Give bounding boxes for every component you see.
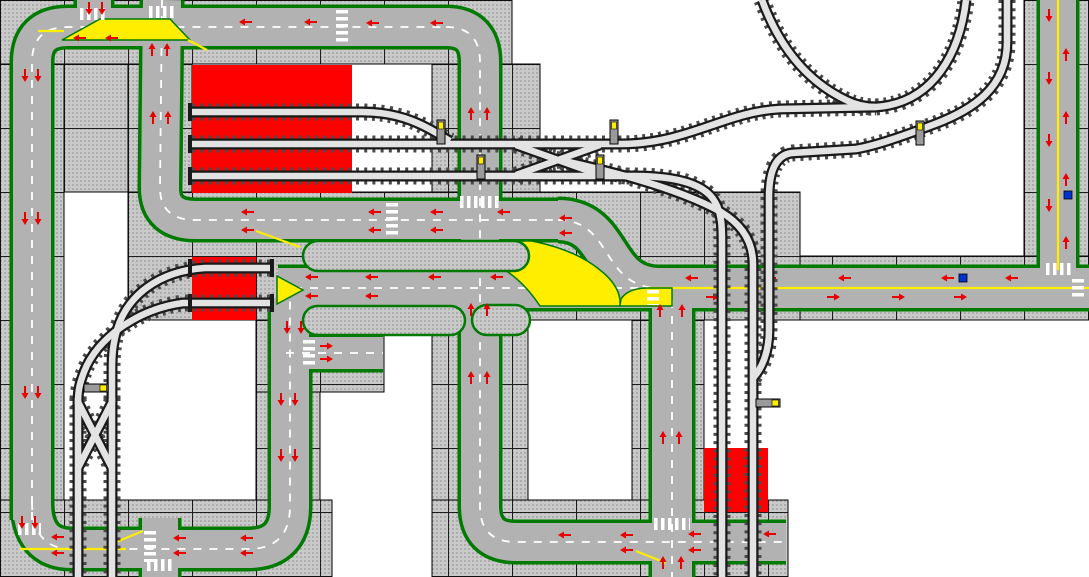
rail-buffer-stop — [270, 294, 274, 312]
track-layout-canvas[interactable] — [0, 0, 1089, 577]
signal-icon[interactable] — [84, 384, 108, 392]
blue-marker[interactable] — [1064, 191, 1072, 199]
rail-buffer-stop — [270, 259, 274, 277]
median-island[interactable] — [303, 241, 529, 271]
rail-ties — [762, 0, 876, 107]
blue-marker[interactable] — [959, 274, 967, 282]
rail-buffer-stop — [188, 167, 192, 185]
median-island[interactable] — [472, 305, 530, 335]
signal-icon[interactable] — [610, 120, 618, 144]
median-island[interactable] — [303, 306, 465, 335]
signal-icon[interactable] — [916, 121, 924, 145]
signal-icon[interactable] — [596, 155, 604, 179]
signal-icon[interactable] — [437, 120, 445, 144]
rail-buffer-stop — [188, 103, 192, 121]
rail-buffer-stop — [188, 135, 192, 153]
tile-grid — [64, 64, 128, 192]
editor-viewport — [0, 0, 1089, 577]
signal-icon[interactable] — [477, 155, 485, 179]
signal-icon[interactable] — [756, 399, 780, 407]
rail-buffer-stop — [188, 294, 192, 312]
rail-buffer-stop — [188, 259, 192, 277]
